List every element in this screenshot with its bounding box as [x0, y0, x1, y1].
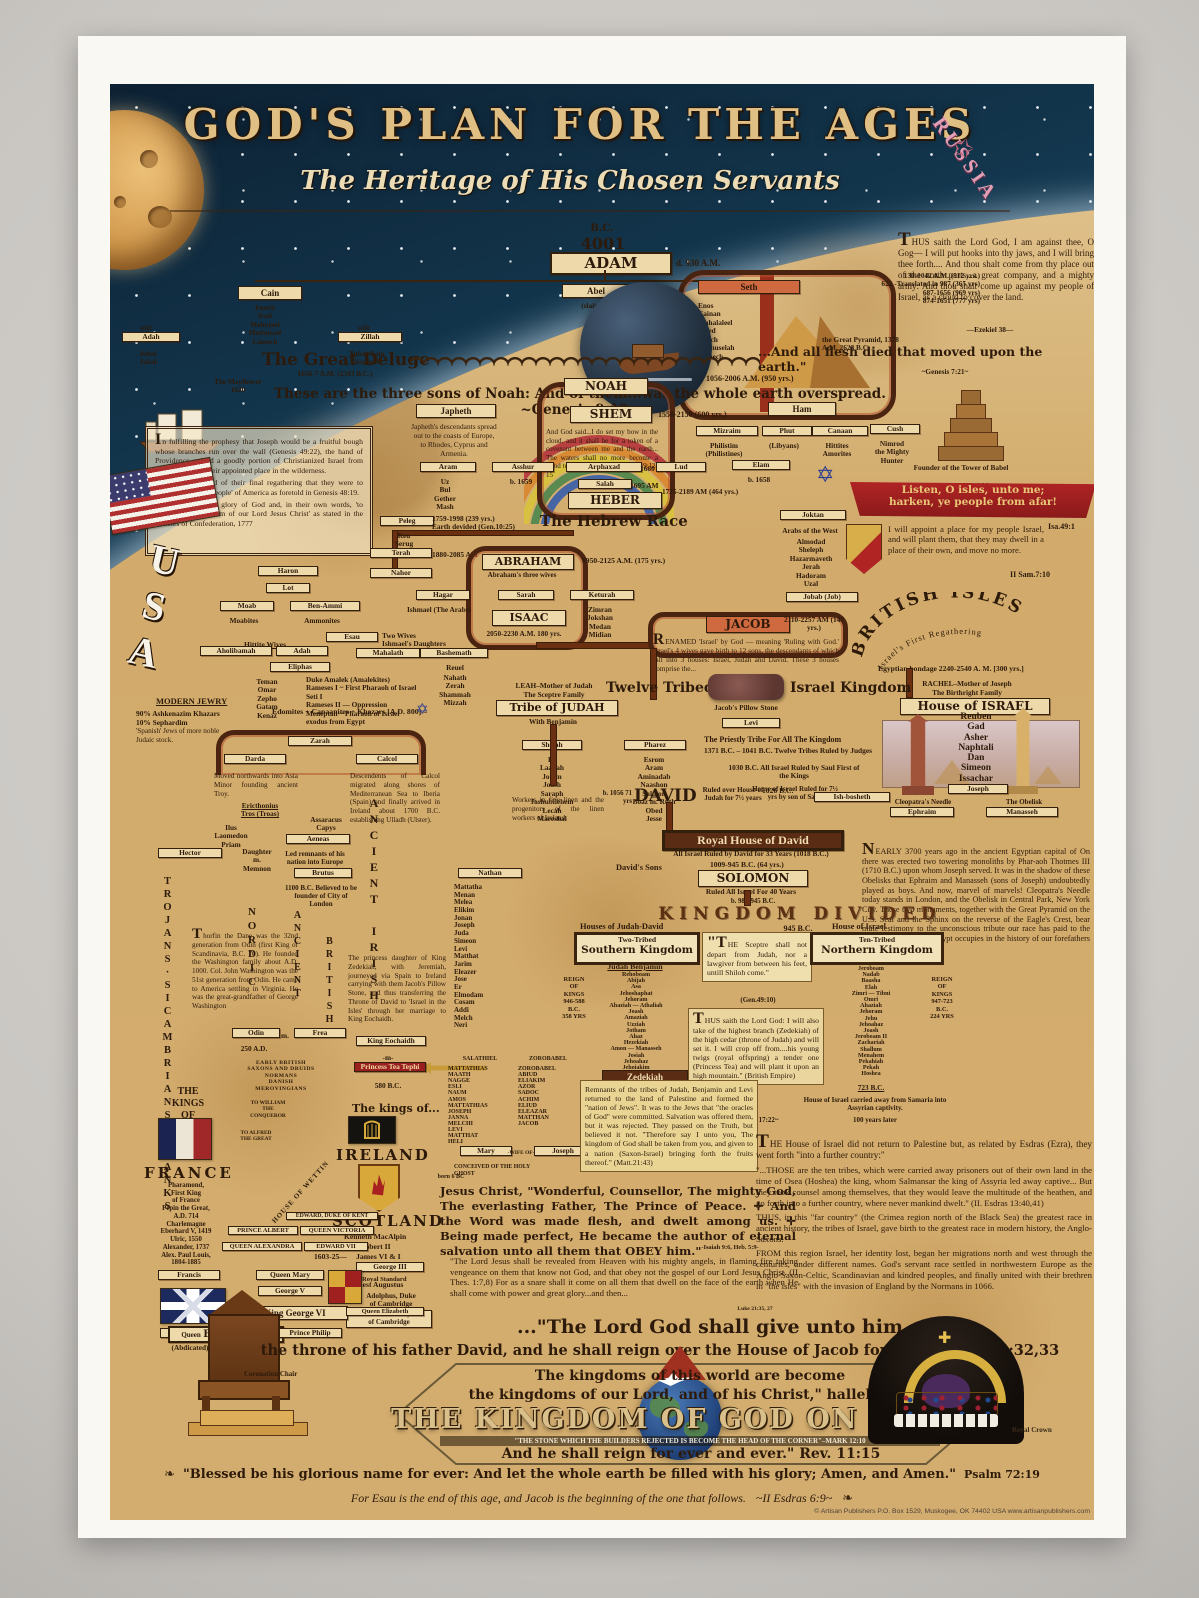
solomon-note: Ruled All Israel For 40 Years [696, 888, 806, 896]
tribe-of-judah-box: Tribe of JUDAH [496, 700, 618, 716]
ilus-line: Ilus Laomedon Priam [198, 824, 264, 849]
mizraim-desc: Philistim (Philistines) [690, 442, 758, 459]
british-isles-arc: BRITISH ISLES Israel's First Regathering [852, 592, 1052, 678]
isles-banner-ribbon: Listen, O isles, unto me; harken, ye peo… [850, 482, 1094, 518]
remnants-quote: Remnants of the tribes of Judah, Benjami… [580, 1080, 758, 1172]
solomon-box: SOLOMON [698, 870, 808, 887]
queen-alexandra-box: QUEEN ALEXANDRA [222, 1242, 302, 1251]
james-date: 1603-25— [314, 1252, 347, 1261]
nahor-box: Nahor [370, 568, 432, 578]
subtitle-rule [170, 210, 1010, 212]
heber-box: HEBER [568, 492, 662, 509]
jacob-renamed-text: RENAMED 'Israel' by God — meaning 'Rulin… [653, 634, 839, 674]
born-6bc-note: born 6 BC [436, 1174, 466, 1181]
three-wives-label: Abraham's three wives [472, 571, 572, 579]
israel-tribes-list: Reuben Gad Asher Naphtali Dan Simeon Iss… [942, 712, 1010, 794]
sceptre-quote: "THE Sceptre shall not depart from Judah… [702, 932, 812, 982]
peleg-box: Peleg [380, 516, 434, 526]
jacob-dates: 2110-2257 AM (147 yrs.) [782, 616, 846, 633]
adam-death: d. 930 A.M. [676, 258, 720, 268]
northern-kingdom-label: Northern Kingdom [813, 944, 941, 956]
revealed-paragraph: "The Lord Jesus shall be revealed from H… [450, 1256, 798, 1299]
svg-text:Israel's First Regathering: Israel's First Regathering [875, 626, 983, 671]
joktan-box: Joktan [780, 510, 846, 520]
pharez-box: Pharez [624, 740, 686, 750]
asshur-birth: b. 1659 [496, 478, 546, 486]
blessed-text: "Blessed be his glorious name for ever: … [183, 1467, 956, 1482]
hebrew-race-label: The Hebrew Race [540, 512, 688, 530]
poster-subtitle: The Heritage of His Chosen Servants [170, 166, 970, 196]
giza-pyramid-icon [1034, 766, 1062, 784]
luke-genealogy-list: MATTATHIAS MAATH NAGGE ESLI NAUM AMOS MA… [448, 1066, 512, 1145]
noah-box: NOAH [564, 378, 648, 395]
north-date: 723 B.C. [838, 1084, 904, 1092]
isaac-dates: 2050-2230 A.M. 180 yrs. [466, 630, 582, 638]
elam-box: Elam [732, 460, 790, 470]
princess-tea-text: The princess daughter of King Zedekiah, … [348, 954, 446, 1024]
needle-caption: Cleopatra's Needle [884, 798, 962, 806]
wife-label: wife [358, 324, 370, 332]
crown-cross-icon: ✚ [938, 1328, 951, 1348]
cush-box: Cush [870, 424, 920, 434]
pillow-stone-graphic [708, 674, 784, 700]
tower-of-babel-icon [932, 380, 1008, 460]
jewry-line2: 10% Sephardim [136, 718, 188, 727]
davids-sons-label: David's Sons [616, 863, 662, 872]
isaiah-ref: Isa.49:1 [1048, 522, 1075, 531]
judah-benjamin-label: Judah Benjamin [592, 962, 678, 971]
coronation-chair-caption: Coronation Chair [244, 1370, 316, 1378]
house-israel-label: House of Israel [832, 922, 886, 931]
phut-note: (Libyans) [756, 442, 812, 450]
descent-houses-list: EARLY BRITISH SAXONS AND DRUIDS NORMANS … [206, 1060, 356, 1092]
frea-box: Frea [294, 1028, 346, 1038]
south-kings-list: Rehoboam Abijah Asa Jehoshaphat Jehoram … [596, 972, 676, 1077]
ten-tribed-label: Ten-Tribed [813, 935, 941, 944]
ireland-harp-flag [348, 1116, 396, 1144]
mahalath-box: Mahalath [356, 648, 420, 658]
sarah-box: Sarah [498, 590, 554, 600]
levi-box: Levi [722, 718, 780, 728]
israel-return-block: THE House of Israel did not return to Pa… [756, 1134, 1092, 1291]
peleg-note: 1759-1998 (239 yrs.) Earth devided (Gen.… [432, 515, 562, 532]
jacob-box: JACOB [706, 616, 790, 633]
modern-jewry-title: MODERN JEWRY [156, 696, 227, 706]
shem-dates: 1558-2158 (600 yrs.) [658, 410, 727, 419]
royal-standard-flag [328, 1270, 362, 1304]
japheth-box: Japheth [416, 404, 496, 418]
obelisk-caption: The Obelisk [990, 798, 1058, 806]
star-of-david-icon: ✡ [816, 462, 834, 488]
phut-box: Phut [762, 426, 812, 436]
poster-artwork: GOD'S PLAN FOR THE AGES The Heritage of … [110, 84, 1094, 1520]
noah-dates: 1056-2006 A.M. (950 yrs.) [706, 374, 794, 383]
wife-label: wife [140, 324, 152, 332]
stone-line: "THE STONE WHICH THE BUILDERS REJECTED I… [440, 1436, 940, 1446]
svg-text:BRITISH ISLES: BRITISH ISLES [852, 592, 1027, 660]
salah-box: Salah [578, 479, 632, 489]
benammi-box: Ben-Ammi [290, 601, 360, 611]
cleopatras-needle-icon [908, 714, 928, 790]
eliphas-box: Eliphas [270, 662, 330, 672]
salah-date: 1695 AM [630, 481, 659, 490]
shem-box: SHEM [570, 406, 652, 423]
brutus-text: 1100 B.C. Believed to be founder of City… [284, 884, 358, 908]
odin-date: 250 A.D. [230, 1045, 278, 1053]
tea-tephi-box: Princess Tea Tephi [354, 1062, 426, 1072]
connector [604, 270, 606, 280]
lot-box: Lot [266, 583, 310, 593]
cain-descendants: Enoch Irad Mehujael Methusael Lamech [234, 304, 296, 346]
haron-box: Haron [258, 566, 318, 576]
flourish-icon: ❧ [842, 1490, 853, 1506]
jobab-box: Jobab (Job) [786, 592, 858, 602]
pillow-stone-caption: Jacob's Pillow Stone [700, 704, 792, 712]
mary-box: Mary [460, 1146, 512, 1156]
hector-box: Hector [158, 848, 222, 858]
cain-box: Cain [238, 286, 302, 300]
deluge-date: 1656-7 A.M. (2343 B.C.) [270, 370, 400, 378]
southern-kingdom-label: Southern Kingdom [577, 944, 697, 956]
babel-caption: Founder of the Tower of Babel [906, 464, 1016, 472]
isaac-box: ISAAC [492, 610, 566, 626]
isles-banner-text: I will appoint a place for my people Isr… [888, 524, 1044, 555]
aeneas-text: Led remnants of his nation into Europe [280, 850, 350, 866]
thorfin-washington-text: Thorfin the Dane was the 32nd generation… [192, 928, 298, 1011]
ezekiel17-quote: THUS saith the Lord God: I will also tak… [688, 1008, 824, 1085]
jewry-line1: 90% Ashkenazim Khazars [136, 709, 220, 718]
aholibamah-box: Aholibamah [200, 646, 272, 656]
blessed-ref: Psalm 72:19 [964, 1468, 1040, 1481]
south-reign-note: REIGN OF KINGS 946-588 B.C. 358 YRS [554, 976, 594, 1021]
linen-workers-text: Workers in fine linen and the progenitor… [512, 796, 604, 822]
reuel-label: Reuel [428, 664, 482, 672]
french-flag [158, 1118, 212, 1160]
flourish-icon: ❧ [164, 1466, 175, 1482]
queen-mary-box: Queen Mary [256, 1270, 324, 1280]
adah-box: Adah [122, 332, 180, 342]
esau-box: Esau [326, 632, 378, 642]
aram-box: Aram [420, 462, 476, 472]
manasseh-box: Manasseh [986, 807, 1058, 817]
george-iii-box: George III [356, 1262, 424, 1272]
terah-box: Terah [370, 548, 432, 558]
solomon-dates: 1009-945 B.C. (64 yrs.) [710, 860, 784, 869]
obelisk-base [1008, 786, 1038, 794]
abraham-box: ABRAHAM [482, 554, 574, 570]
hagar-box: Hagar [416, 590, 470, 600]
judah-david-pipe [550, 724, 557, 786]
nathan-desc: Mattatha Menan Melea Elikim Jonan Joseph… [454, 884, 520, 1030]
judges-note: 1371 B.C. – 1041 B.C. Twelve Tribes Rule… [704, 746, 872, 755]
queen-elizabeth-qm-box: Queen Elizabeth [346, 1307, 424, 1316]
coronation-chair-graphic [186, 1290, 316, 1440]
wife-of-label: -WIFE OF- [506, 1150, 536, 1156]
levi-note: The Priestly Tribe For All The Kingdom [704, 735, 841, 744]
moab-box: Moab [220, 601, 274, 611]
reign-line: And he shall reign for ever and ever." R… [466, 1446, 916, 1462]
darda-box: Darda [224, 754, 286, 764]
hagar-desc: Ishmael (The Arabs) [406, 606, 472, 614]
deluge-title: The Great Deluge [262, 350, 430, 370]
ephraim-box: Ephraim [890, 807, 954, 817]
israel-kingdom-label: Israel Kingdom [790, 680, 911, 696]
arphaxad-box: Arphaxad [566, 462, 642, 472]
aeneas-box: Aeneas [286, 834, 350, 844]
zarah-box: Zarah [288, 736, 352, 746]
esau-ref: ~II Esdras 6:9~ [756, 1491, 832, 1506]
kingdom-divided-title: KINGDOM DIVIDED [630, 904, 970, 924]
david-birth: b. 1056 71 yrs [598, 790, 632, 806]
ireland-label: IRELAND [336, 1146, 430, 1164]
north-later-note: 100 years later [832, 1116, 918, 1124]
salathiel-label: SALATHIEL [450, 1056, 510, 1063]
jewry-equation: Edomites + Canaanites + Khazars [A.D. 80… [272, 707, 428, 716]
blessed-line: ❧ "Blessed be his glorious name for ever… [150, 1466, 1054, 1482]
isles-banner-line1: Listen, O isles, unto me; [850, 482, 1094, 496]
poster-title: GOD'S PLAN FOR THE AGES [150, 100, 1010, 149]
francis-box: Francis [158, 1270, 220, 1280]
canaan-box: Canaan [812, 426, 868, 436]
edward-duke-kent-box: EDWARD, DUKE OF KENT [286, 1212, 378, 1220]
needle-base [902, 786, 934, 795]
royal-house-note: All Israel Ruled by David for 33 Years (… [658, 850, 844, 858]
prince-albert-box: PRINCE ALBERT [228, 1226, 298, 1235]
asshur-box: Asshur [492, 462, 554, 472]
british-isles-label: BRITISH ISLES [852, 592, 1027, 660]
heber-dates: 1725-2189 AM (464 yrs.) [662, 488, 758, 496]
to-william-note: TO WILLIAM THE CONQUEROR [248, 1100, 288, 1119]
return-p1: THE House of Israel did not return to Pa… [756, 1134, 1092, 1161]
publisher-footer: © Artisan Publishers P.O. Box 1529, Musk… [670, 1508, 1090, 1515]
abraham-dates: 1950-2125 A.M. (175 yrs.) [582, 556, 665, 565]
france-label: FRANCE [144, 1164, 234, 1182]
to-alfred-note: TO ALFRED THE GREAT [238, 1130, 274, 1143]
tea-date: 580 B.C. [364, 1082, 412, 1090]
calcol-text: Descendents of Calcol migrated along sho… [350, 772, 440, 825]
isles-banner-line2: harken, ye people from afar! [850, 496, 1094, 508]
revealed-ref: Luke 21:35, 27 [710, 1306, 800, 1312]
bc-label: B.C. [572, 224, 632, 234]
flesh-died-ref: ~Genesis 7:21~ [890, 368, 1000, 376]
joseph-box: Joseph [948, 784, 1008, 794]
royal-crown-graphic: ✚ [892, 1328, 1000, 1438]
esau-line: For Esau is the end of this age, and Jac… [190, 1490, 1014, 1506]
reuel-desc: Nahath Zerah Shammah Mizzah [426, 674, 484, 708]
twelve-tribed-label: Twelve Tribed [606, 680, 714, 696]
nathan-box: Nathan [458, 868, 522, 878]
zillah-box: Zillah [338, 332, 402, 342]
north-exile-note: House of Israel carried away from Samari… [800, 1096, 950, 1112]
samuel-ref: II Sam.7:10 [1010, 570, 1050, 579]
odin-box: Odin [232, 1028, 280, 1038]
joktan-desc: Almodad Sheleph Hazarmaveth Jerah Hadora… [776, 538, 846, 589]
royal-crown-caption: Royal Crown [1012, 1426, 1068, 1434]
isaac-jacob-pipe [536, 642, 652, 649]
return-p3: THUS, in this "far country" (the Crimea … [756, 1212, 1092, 1244]
saul-note: 1030 B.C. All Israel Ruled by Saul First… [726, 764, 862, 781]
flood-wave-line [410, 356, 760, 366]
ham-box: Ham [768, 402, 836, 416]
year-4001: 4001 [568, 234, 638, 253]
queen-victoria-box: QUEEN VICTORIA [300, 1226, 374, 1235]
northern-kingdom-box: Ten-Tribed Northern Kingdom [810, 932, 944, 965]
mizraim-box: Mizraim [696, 426, 758, 436]
the-kings-of-label: The kings of... [352, 1102, 440, 1115]
zorobabel-label: ZOROBABEL [516, 1056, 580, 1063]
throne-line1: ..."The Lord God shall give unto him [470, 1316, 950, 1338]
lud-box: Lud [656, 462, 706, 472]
rachel-caption2: The Birthright Family [906, 689, 1028, 697]
first-regathering-label: Israel's First Regathering [875, 626, 983, 671]
keturah-box: Keturah [570, 590, 634, 600]
france-kings-list: Pharamond, First King of France Pepin th… [140, 1182, 232, 1267]
ishbosheth-box: Ish-bosheth [814, 792, 890, 802]
adam-box: ADAM [550, 252, 672, 275]
calcol-box: Calcol [356, 754, 418, 764]
sceptre-ref: (Gen.49:10) [728, 996, 788, 1004]
southern-kingdom-box: Two-Tribed Southern Kingdom [574, 932, 700, 965]
darda-text: Moved northwards into Asia Minor foundin… [214, 772, 298, 798]
north-reign-note: REIGN OF KINGS 947-723 B.C. 224 YRS [922, 976, 962, 1021]
the-kings-of-france: THE KINGS OF [164, 1086, 212, 1122]
adah-sons: Jubal Jabal [120, 350, 176, 367]
ammonites-label: Ammonites [288, 617, 356, 625]
two-tribed-label: Two-Tribed [577, 935, 697, 944]
nimrod-text: Nimrod the Mighty Hunter [858, 440, 926, 465]
pharaoh-list: Duke Amalek (Amalekites) Rameses I ~ Fir… [306, 676, 434, 727]
james-vi: James VI & I [356, 1252, 401, 1261]
ezekiel38-quote: THUS saith the Lord God, I am against th… [898, 232, 1094, 303]
obelisk-icon [1014, 708, 1032, 790]
elam-birth: b. 1658 [736, 476, 782, 484]
return-p2: "...THOSE are the ten tribes, which were… [756, 1165, 1092, 1208]
memnon-line: Daughter m. Memnon [226, 848, 288, 873]
brutus-box: Brutus [294, 868, 352, 878]
leah-caption2: The Sceptre Family [506, 691, 602, 699]
return-p4: FROM this region Israel, her identity lo… [756, 1248, 1092, 1291]
moabites-label: Moabites [216, 617, 272, 625]
seth-box: Seth [698, 280, 800, 294]
conceived-note: CONCEIVED OF THE HOLY GHOST [454, 1164, 534, 1177]
japheth-text: Japheth's descendants spread out to the … [410, 422, 498, 458]
edward-vii-box: EDWARD VII [304, 1242, 368, 1251]
star-of-david-icon: ✡ [416, 700, 429, 719]
odin-m: m. [276, 1032, 294, 1040]
poster-sheet: GOD'S PLAN FOR THE AGES The Heritage of … [78, 36, 1126, 1538]
royal-standard-caption: Royal Standard [362, 1276, 410, 1284]
esau-note: Two Wives Ishmael's Daughters [382, 632, 476, 649]
aram-desc: Uz Bul Gether Mash [420, 478, 470, 512]
north-kings-list: Jeroboam Nadab Baasha Elah Zimri — Tibni… [826, 966, 916, 1078]
houses-jd-label: Houses of Judah-David [580, 922, 663, 931]
ezekiel38-ref: —Ezekiel 38— [930, 326, 1050, 334]
esau-text: For Esau is the end of this age, and Jac… [351, 1491, 746, 1506]
bashemath-box: Bashemath [420, 648, 488, 658]
david-royal-pipe [666, 802, 673, 832]
king-eochaidh-box: King Eochaidh [356, 1036, 426, 1046]
adah2-box: Adah [276, 646, 328, 656]
matthew-genealogy-list: ZOROBABEL ABIUD ELIAKIM AZOR SADOC ACHIM… [518, 1066, 582, 1127]
